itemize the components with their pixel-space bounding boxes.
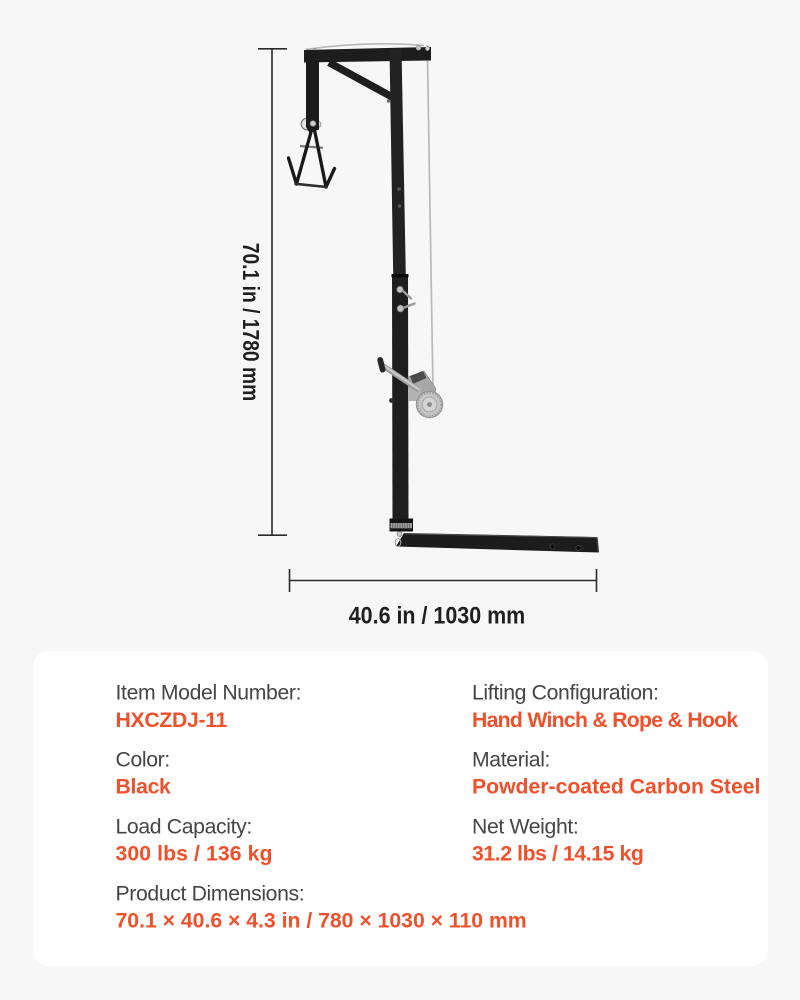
svg-text:Powder-coated Carbon Steel: Powder-coated Carbon Steel <box>472 776 760 799</box>
svg-text:Load Capacity:: Load Capacity: <box>116 816 252 839</box>
svg-text:300 lbs / 136 kg: 300 lbs / 136 kg <box>116 843 273 866</box>
svg-text:31.2 lbs / 14.15 kg: 31.2 lbs / 14.15 kg <box>472 843 643 866</box>
svg-text:Net Weight:: Net Weight: <box>472 816 578 839</box>
svg-text:70.1 in / 1780 mm: 70.1 in / 1780 mm <box>238 243 264 402</box>
svg-text:Color:: Color: <box>116 749 170 772</box>
svg-text:Lifting Configuration:: Lifting Configuration: <box>472 682 659 705</box>
svg-text:Product Dimensions:: Product Dimensions: <box>116 883 305 906</box>
svg-text:Item Model Number:: Item Model Number: <box>116 682 302 705</box>
svg-text:Material:: Material: <box>472 749 550 772</box>
svg-text:70.1 × 40.6 × 4.3 in / 780 × 1: 70.1 × 40.6 × 4.3 in / 780 × 1030 × 110 … <box>116 910 527 933</box>
svg-text:Hand Winch & Rope & Hook: Hand Winch & Rope & Hook <box>472 709 738 732</box>
svg-text:40.6 in / 1030 mm: 40.6 in / 1030 mm <box>349 603 526 630</box>
svg-text:HXCZDJ-11: HXCZDJ-11 <box>116 709 228 732</box>
svg-text:Black: Black <box>116 776 172 799</box>
